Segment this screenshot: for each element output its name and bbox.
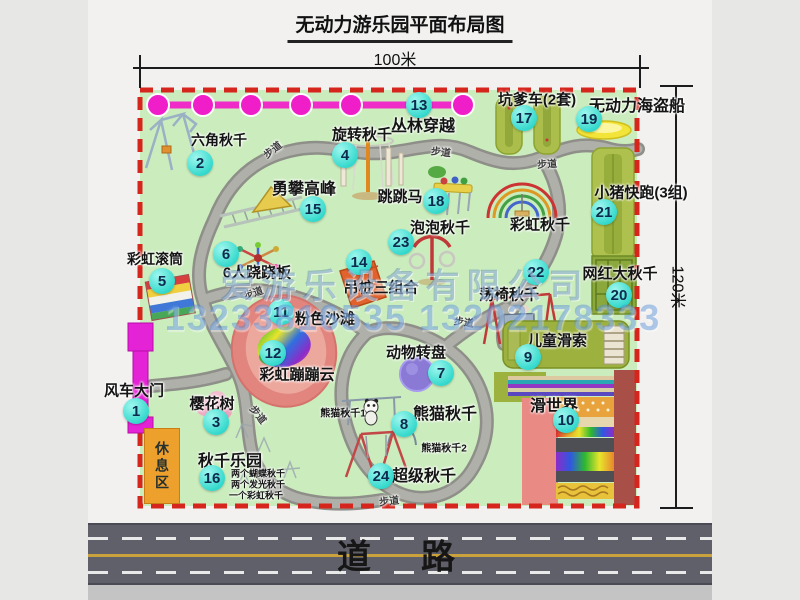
watermark-phone: 13233816535 13202178333 — [165, 297, 661, 339]
screenshot-root: 无动力游乐园平面布局图 100米 120米 — [0, 0, 800, 600]
road-shoulder — [88, 585, 712, 600]
rest-area-zone: 休息区 — [144, 428, 180, 504]
road-label: 道 路 — [337, 530, 463, 579]
road: 道 路 — [88, 523, 712, 585]
dimension-height-label: 120米 — [667, 266, 691, 309]
page-title: 无动力游乐园平面布局图 — [287, 10, 512, 43]
dimension-width-label: 100米 — [374, 46, 417, 70]
